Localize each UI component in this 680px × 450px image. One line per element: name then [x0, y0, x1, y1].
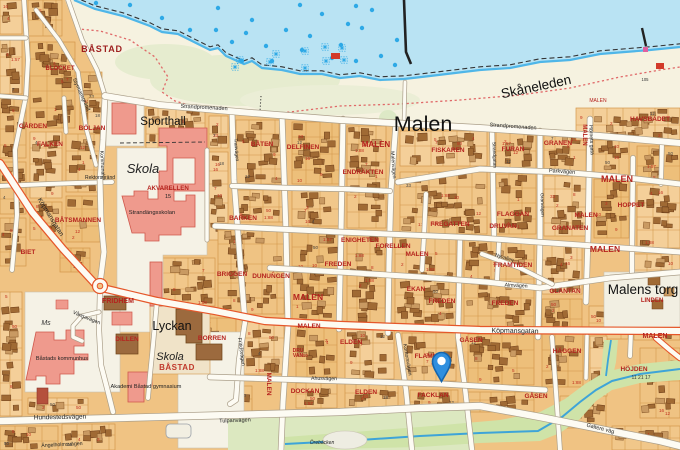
svg-text:BÅTEN: BÅTEN: [251, 139, 274, 148]
svg-text:BÅSTAD: BÅSTAD: [159, 363, 195, 372]
svg-text:DRUVAN: DRUVAN: [489, 223, 517, 230]
svg-text:16: 16: [3, 4, 9, 9]
svg-text:VAN: VAN: [293, 353, 304, 359]
svg-text:9: 9: [320, 172, 323, 177]
svg-text:7: 7: [202, 268, 205, 273]
svg-text:DUNUNGEN: DUNUNGEN: [252, 273, 290, 280]
svg-text:2: 2: [504, 139, 507, 144]
svg-text:FISKAREN: FISKAREN: [431, 147, 465, 154]
svg-text:50: 50: [303, 353, 309, 358]
svg-text:5: 5: [12, 108, 15, 113]
svg-text:10: 10: [668, 261, 674, 266]
svg-text:FRAMTIDEN: FRAMTIDEN: [494, 262, 533, 269]
svg-text:50: 50: [551, 302, 557, 307]
svg-text:2: 2: [556, 203, 559, 208]
svg-text:4: 4: [7, 16, 10, 21]
svg-text:3: 3: [570, 255, 573, 260]
svg-text:1:88: 1:88: [572, 380, 581, 385]
svg-text:50: 50: [12, 324, 18, 329]
svg-text:1: 1: [517, 197, 520, 202]
svg-text:10: 10: [217, 193, 223, 198]
svg-text:3: 3: [6, 52, 9, 57]
svg-text:FREGATTEN: FREGATTEN: [430, 221, 470, 228]
svg-text:50: 50: [591, 314, 597, 319]
svg-text:1:88: 1:88: [441, 193, 450, 198]
svg-text:3: 3: [97, 437, 100, 442]
svg-text:MALEN: MALEN: [574, 212, 597, 219]
svg-text:8: 8: [10, 384, 13, 389]
svg-text:50: 50: [50, 402, 55, 407]
svg-text:1:57: 1:57: [304, 401, 313, 406]
svg-text:MALEN: MALEN: [589, 98, 607, 104]
svg-text:DOCKAN: DOCKAN: [291, 388, 320, 395]
svg-text:1: 1: [573, 155, 576, 160]
svg-text:33: 33: [550, 194, 556, 199]
svg-text:8: 8: [371, 265, 374, 270]
svg-text:1:88: 1:88: [365, 278, 374, 283]
svg-text:GRANATEN: GRANATEN: [552, 225, 589, 232]
svg-text:1:88: 1:88: [645, 240, 654, 245]
svg-text:105: 105: [642, 77, 650, 82]
svg-text:7: 7: [66, 77, 69, 82]
svg-text:18: 18: [219, 161, 224, 166]
svg-text:ENIGHETEN: ENIGHETEN: [341, 237, 379, 244]
svg-text:1: 1: [517, 224, 520, 229]
svg-text:1:57: 1:57: [11, 57, 20, 62]
svg-text:1: 1: [82, 160, 85, 165]
svg-text:50: 50: [668, 151, 673, 156]
svg-text:50: 50: [4, 441, 9, 446]
svg-text:33: 33: [298, 134, 304, 139]
svg-text:FALKEN: FALKEN: [37, 141, 63, 148]
svg-text:Örebäcken: Örebäcken: [310, 439, 335, 446]
svg-text:16: 16: [614, 155, 620, 160]
svg-text:HAVSBADET: HAVSBADET: [630, 116, 670, 123]
svg-text:FRIDHEM: FRIDHEM: [102, 298, 134, 305]
svg-text:9: 9: [251, 307, 254, 312]
svg-text:FLAGGAN: FLAGGAN: [497, 211, 529, 218]
svg-text:4: 4: [275, 176, 278, 181]
svg-text:Lyckan: Lyckan: [152, 319, 191, 333]
svg-text:MALEN: MALEN: [643, 333, 668, 340]
svg-text:Strandängsskolan: Strandängsskolan: [129, 210, 175, 216]
svg-text:5: 5: [12, 429, 15, 434]
svg-text:2: 2: [216, 122, 219, 127]
svg-text:ENDRÄKTEN: ENDRÄKTEN: [343, 168, 384, 176]
svg-text:50: 50: [266, 208, 272, 213]
svg-text:7: 7: [365, 162, 368, 167]
svg-text:2: 2: [401, 262, 404, 267]
svg-text:1:88: 1:88: [426, 267, 435, 272]
svg-text:16: 16: [659, 408, 665, 413]
svg-text:DELFINEN: DELFINEN: [287, 144, 320, 151]
svg-text:GÅSEN: GÅSEN: [524, 391, 547, 400]
svg-text:5: 5: [61, 79, 64, 84]
svg-text:GÅRDEN: GÅRDEN: [19, 121, 47, 130]
svg-text:3: 3: [42, 405, 45, 410]
svg-text:16: 16: [305, 219, 311, 224]
svg-text:12: 12: [506, 159, 511, 164]
svg-text:Strandgatan: Strandgatan: [491, 142, 498, 169]
svg-text:2: 2: [610, 121, 613, 126]
svg-text:50: 50: [605, 160, 610, 165]
svg-text:16: 16: [658, 190, 664, 195]
svg-text:Sporthall: Sporthall: [140, 116, 185, 128]
svg-text:Båstads kommunhus: Båstads kommunhus: [36, 355, 88, 362]
svg-text:50: 50: [269, 335, 275, 340]
svg-text:BÅSTAD: BÅSTAD: [81, 44, 123, 54]
svg-text:12: 12: [245, 174, 250, 179]
svg-text:15: 15: [165, 194, 171, 200]
svg-text:HÄGGEN: HÄGGEN: [553, 347, 582, 355]
svg-text:Hundestedsvägen: Hundestedsvägen: [34, 414, 87, 422]
svg-text:BÅTSMANNEN: BÅTSMANNEN: [55, 215, 102, 224]
svg-text:12: 12: [75, 229, 81, 234]
svg-text:4: 4: [650, 191, 653, 196]
svg-text:Ahusvägen: Ahusvägen: [311, 376, 337, 382]
svg-text:EKAN: EKAN: [407, 286, 426, 293]
svg-text:12: 12: [476, 211, 482, 216]
svg-text:2: 2: [354, 194, 357, 199]
svg-text:2: 2: [546, 364, 549, 369]
svg-text:8: 8: [573, 192, 576, 197]
svg-text:10: 10: [614, 144, 620, 149]
svg-text:50: 50: [433, 289, 438, 294]
svg-text:2: 2: [72, 235, 75, 240]
svg-text:7: 7: [304, 208, 307, 213]
svg-text:9: 9: [51, 191, 54, 196]
svg-text:2: 2: [552, 308, 555, 313]
svg-text:Köpmansgatan: Köpmansgatan: [491, 328, 538, 336]
svg-text:BORREN: BORREN: [198, 335, 226, 342]
svg-text:50: 50: [76, 405, 82, 410]
svg-text:FREDEN: FREDEN: [325, 261, 352, 268]
svg-text:1:88: 1:88: [255, 368, 264, 373]
svg-text:MALEN: MALEN: [362, 140, 391, 149]
svg-text:4: 4: [78, 167, 81, 172]
svg-text:8: 8: [233, 298, 236, 303]
svg-text:Rektorsgränd: Rektorsgränd: [85, 175, 115, 181]
svg-text:50: 50: [313, 245, 318, 250]
svg-text:Tulpanvägen: Tulpanvägen: [219, 417, 251, 424]
svg-text:5: 5: [4, 143, 7, 148]
svg-text:ELDEN: ELDEN: [340, 339, 362, 346]
svg-text:8: 8: [173, 287, 176, 292]
svg-text:FORELLEN: FORELLEN: [375, 243, 410, 250]
svg-text:18: 18: [383, 395, 388, 400]
svg-text:MALEN: MALEN: [601, 174, 633, 184]
svg-text:HOPPET: HOPPET: [618, 202, 645, 209]
svg-text:LINDEN: LINDEN: [641, 298, 663, 304]
svg-text:11 21 17: 11 21 17: [631, 375, 650, 381]
svg-text:BLOCKET: BLOCKET: [46, 66, 75, 72]
svg-text:DILLEN: DILLEN: [115, 336, 139, 343]
svg-text:4: 4: [472, 136, 475, 141]
svg-text:12: 12: [80, 145, 86, 150]
svg-text:Almvägen: Almvägen: [504, 282, 527, 289]
svg-text:16: 16: [565, 261, 571, 266]
svg-text:1: 1: [54, 107, 57, 112]
svg-text:5: 5: [242, 139, 245, 144]
svg-text:GLÄNTAN: GLÄNTAN: [549, 287, 581, 295]
svg-text:12: 12: [665, 411, 671, 416]
svg-text:MALEN: MALEN: [581, 124, 587, 145]
svg-text:3: 3: [605, 201, 608, 206]
svg-text:FURAN: FURAN: [502, 146, 525, 153]
svg-text:BIET: BIET: [21, 249, 36, 256]
svg-text:Malens torg: Malens torg: [608, 282, 679, 297]
svg-text:BÖLJAN: BÖLJAN: [79, 123, 106, 132]
svg-text:16: 16: [305, 156, 311, 161]
svg-text:MALEN: MALEN: [590, 244, 620, 254]
svg-text:10: 10: [454, 195, 460, 200]
svg-text:Ms: Ms: [41, 320, 51, 327]
svg-text:8: 8: [248, 331, 251, 336]
svg-text:9: 9: [479, 377, 482, 382]
svg-text:50: 50: [457, 141, 463, 146]
svg-text:4: 4: [560, 262, 563, 267]
svg-text:4: 4: [439, 311, 442, 316]
svg-text:5: 5: [512, 368, 515, 373]
svg-text:HÖJDEN: HÖJDEN: [620, 364, 647, 373]
svg-text:1:88: 1:88: [264, 215, 273, 220]
svg-text:10: 10: [360, 333, 366, 338]
svg-text:Skola: Skola: [156, 351, 184, 363]
svg-text:9: 9: [580, 115, 583, 120]
svg-text:FREDEN: FREDEN: [429, 298, 456, 305]
svg-text:BARKEN: BARKEN: [229, 215, 257, 222]
svg-text:9: 9: [615, 227, 618, 232]
svg-text:ELDEN: ELDEN: [355, 389, 377, 396]
svg-text:1:88: 1:88: [355, 253, 364, 258]
svg-text:10: 10: [297, 178, 303, 183]
svg-text:18: 18: [95, 113, 100, 118]
svg-text:12: 12: [380, 334, 385, 339]
svg-text:5: 5: [434, 137, 437, 142]
svg-text:5: 5: [435, 251, 438, 256]
svg-text:8: 8: [475, 356, 478, 361]
svg-text:9: 9: [350, 360, 353, 365]
svg-text:4: 4: [326, 340, 329, 345]
svg-text:BRIGGEN: BRIGGEN: [217, 271, 248, 278]
svg-text:MALEN: MALEN: [293, 292, 323, 302]
svg-text:GÅSEN: GÅSEN: [459, 335, 482, 344]
svg-text:AKVARELLEN: AKVARELLEN: [147, 185, 189, 192]
svg-text:GRANEN: GRANEN: [544, 140, 572, 147]
svg-text:1: 1: [296, 304, 299, 309]
svg-text:5: 5: [33, 226, 36, 231]
svg-text:2: 2: [658, 133, 661, 138]
svg-text:MALEN: MALEN: [297, 323, 320, 330]
svg-text:2: 2: [359, 283, 362, 288]
svg-text:FACKLAN: FACKLAN: [417, 392, 448, 399]
svg-text:1:57: 1:57: [323, 237, 332, 242]
svg-text:Malen: Malen: [394, 112, 453, 136]
svg-text:7: 7: [214, 186, 217, 191]
svg-text:1:57: 1:57: [647, 164, 656, 169]
svg-text:16: 16: [213, 167, 219, 172]
svg-text:9: 9: [273, 152, 276, 157]
svg-text:FREDEN: FREDEN: [492, 300, 519, 307]
svg-text:Granvägen: Granvägen: [539, 193, 546, 217]
svg-text:10: 10: [26, 432, 32, 437]
svg-text:Skola: Skola: [127, 161, 160, 176]
svg-text:5: 5: [5, 294, 8, 299]
svg-text:Akademi Båstad gymnasium: Akademi Båstad gymnasium: [111, 383, 182, 390]
svg-text:10: 10: [596, 318, 602, 323]
svg-text:MALEN: MALEN: [405, 251, 428, 258]
svg-text:4: 4: [2, 232, 5, 237]
svg-text:MALEN: MALEN: [265, 372, 272, 395]
